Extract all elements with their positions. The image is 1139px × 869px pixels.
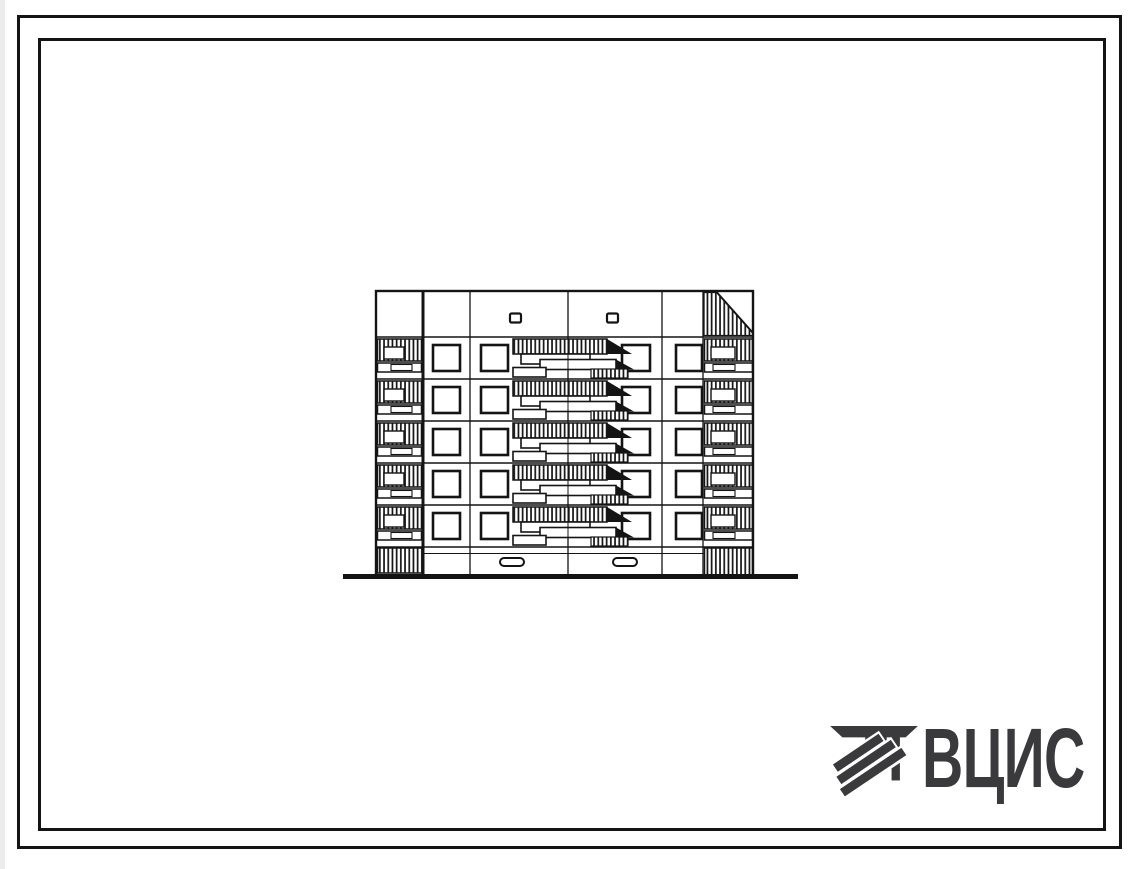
parapet-vent bbox=[607, 314, 618, 323]
scan-edge-artifact bbox=[0, 0, 5, 869]
building-elevation-drawing bbox=[340, 282, 810, 584]
basement-hatch-left bbox=[378, 548, 423, 573]
parapet-vent bbox=[510, 314, 521, 323]
basement-vent bbox=[500, 558, 524, 566]
basement-vent bbox=[613, 558, 637, 566]
diagonal-striped-monogram-icon bbox=[830, 726, 918, 798]
basement-hatch-right bbox=[705, 548, 753, 575]
storey-modules bbox=[378, 339, 753, 546]
vcis-logo: ВЦИС bbox=[830, 724, 1139, 802]
ground-line bbox=[343, 574, 798, 579]
logo-text: ВЦИС bbox=[922, 716, 1085, 800]
